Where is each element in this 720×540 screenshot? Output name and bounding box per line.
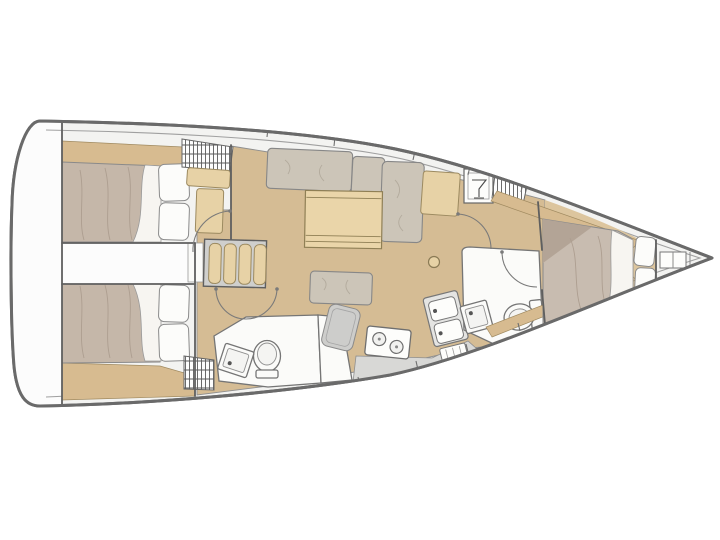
room-transom <box>13 119 62 408</box>
engine-space <box>63 244 195 283</box>
ottoman <box>309 271 372 305</box>
transom-platform <box>13 119 62 408</box>
pillow <box>158 202 189 240</box>
room-engine-space <box>63 244 195 283</box>
room-companionway <box>188 239 267 288</box>
toilet <box>254 341 281 379</box>
settee-back-cushion <box>351 156 385 196</box>
room-aft-cabin-port <box>62 139 233 242</box>
companionway-steps <box>203 239 266 288</box>
pillow <box>158 284 189 322</box>
boat-floor-plan <box>0 0 720 540</box>
pillow <box>633 236 656 267</box>
hanging-locker <box>184 356 214 390</box>
floor-plan-canvas <box>0 0 720 540</box>
saloon-table <box>304 190 382 248</box>
settee-corner-wood <box>421 171 461 216</box>
table-pedestal <box>429 257 440 268</box>
pillow <box>158 163 189 201</box>
stove <box>365 326 412 359</box>
settee-back-cushion <box>266 148 353 192</box>
